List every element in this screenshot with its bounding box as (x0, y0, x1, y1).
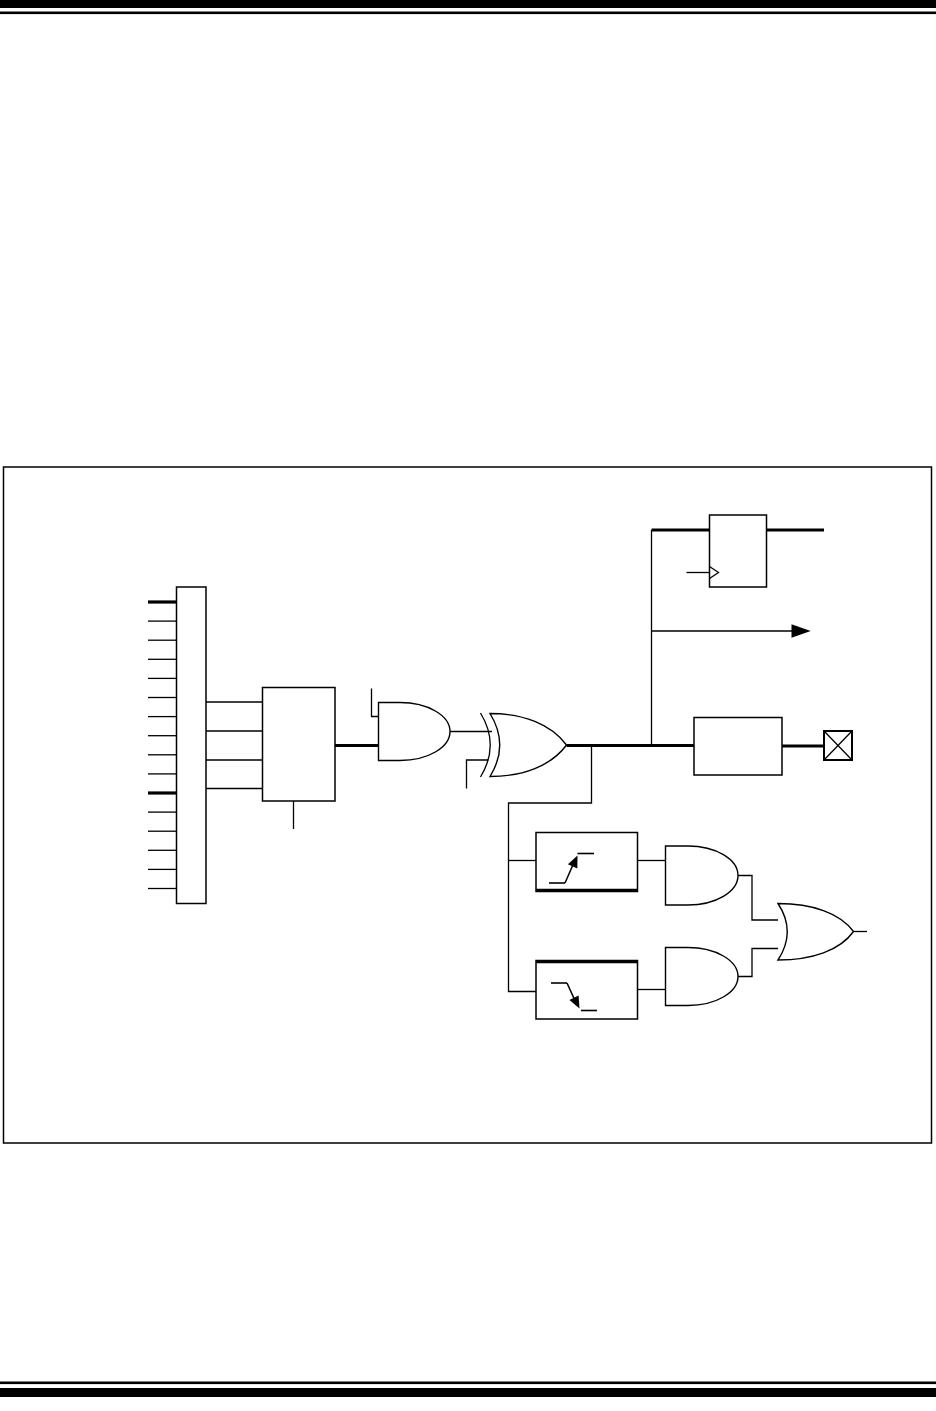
document-page (0, 0, 936, 1411)
selector-block-body (263, 688, 336, 802)
schematic-canvas (0, 0, 936, 1411)
branch-arrow-head (792, 624, 811, 637)
io-pad (824, 731, 852, 760)
and1-top-stub (372, 689, 379, 717)
and2-output-wire (738, 876, 778, 921)
xor-body (490, 714, 567, 777)
and-gate-1 (372, 689, 493, 761)
output-driver (694, 718, 824, 776)
rising-edge-detector (536, 833, 666, 892)
xor-lower-stub (467, 760, 489, 789)
and3-output-wire (738, 949, 778, 977)
and-gate-2 (666, 846, 779, 920)
xor-extra-arc (481, 713, 491, 777)
figure-frame (4, 467, 932, 1143)
bottom-thin-rule (0, 1382, 936, 1385)
bottom-thick-rule (0, 1388, 936, 1397)
xor-gate (467, 713, 567, 789)
d-flipflop (652, 515, 825, 587)
output-driver-body (694, 718, 782, 776)
and1-body (379, 703, 451, 761)
top-thin-rule (0, 12, 936, 15)
input-bus (148, 587, 206, 904)
or-body (778, 904, 854, 961)
and2-body (666, 846, 739, 905)
and3-body (666, 948, 739, 1006)
bus-to-selector-wires (206, 702, 263, 789)
input-bus-pins (148, 602, 177, 889)
ff-body (710, 515, 767, 587)
falling-edge-detector (536, 961, 666, 1020)
and-gate-3 (666, 948, 779, 1006)
input-bus-body (177, 587, 207, 904)
selector-block (263, 688, 379, 830)
top-thick-rule (0, 0, 936, 8)
or-gate (778, 904, 867, 961)
